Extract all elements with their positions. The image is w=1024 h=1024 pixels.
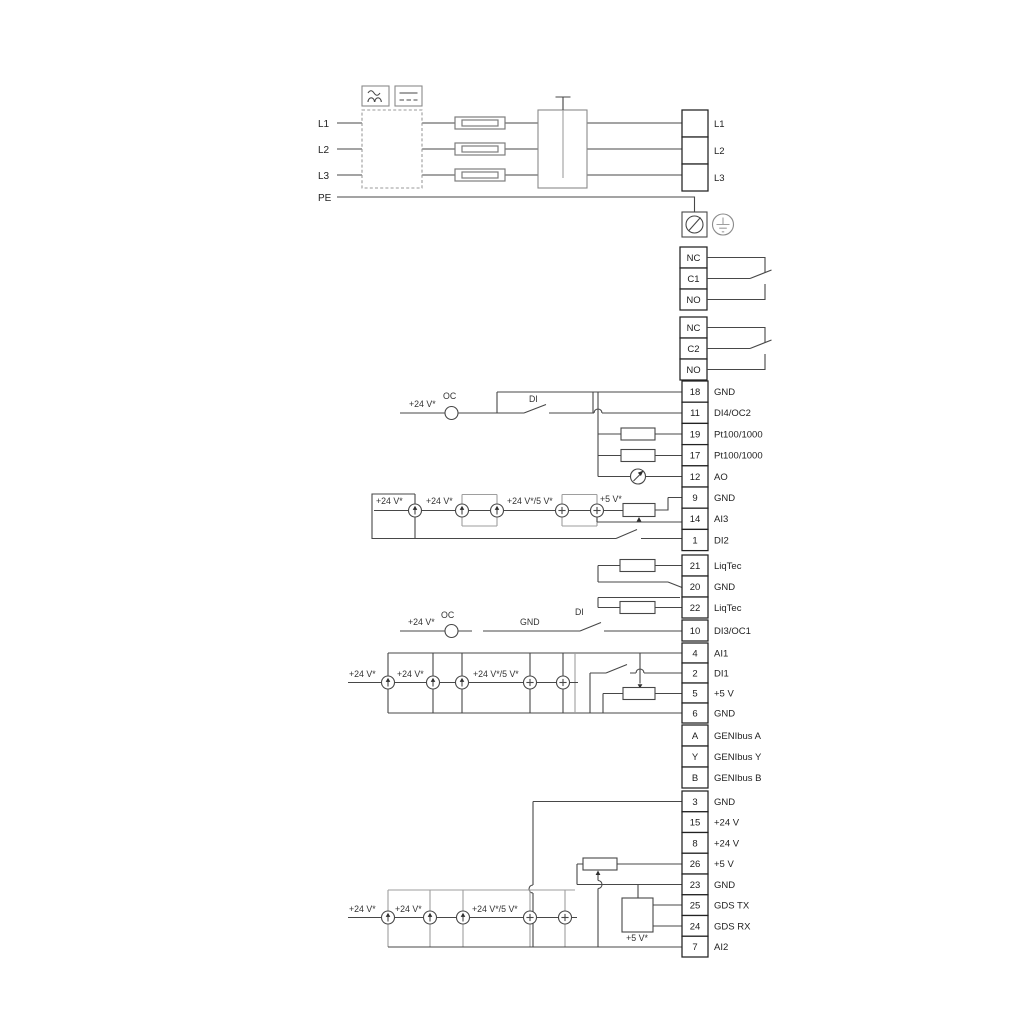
terminal-label: +5 V [714,859,734,870]
terminal-label: +5 V [714,688,734,699]
genibus-terminal-block: AGENIbus AYGENIbus YBGENIbus B [682,725,762,788]
terminal-number: NO [686,365,700,376]
terminal-label: GND [714,582,735,593]
terminal-label: DI2 [714,535,729,546]
line-l2-label: L2 [318,145,330,156]
terminal-number: C2 [687,344,699,355]
terminal-number: 19 [690,429,701,440]
io-bottom-section: +24 V* +24 V* +24 V*/5 V* +5 V* [348,802,682,948]
di4-label: DI [529,394,538,404]
terminal-number: 4 [692,648,697,659]
terminal-number: 20 [690,582,701,593]
liqtec-21-resistor-icon [620,560,655,572]
di2-switch-icon [616,530,682,539]
terminal-number: C1 [687,274,699,285]
voltage-source-icon [524,676,537,689]
voltage-source-icon [559,911,572,924]
oc1-gnd-label: GND [520,617,540,627]
ai2-label-a: +24 V* [349,904,376,914]
ai3-label-c: +24 V*/5 V* [507,496,553,506]
terminal-number: B [692,773,698,784]
terminal-label: GND [714,797,735,808]
terminal-label: AI1 [714,648,728,659]
fuse-l3-icon [455,169,505,181]
terminal-number: 7 [692,942,697,953]
io-top-terminal-block: 18GND11DI4/OC219Pt100/100017Pt100/100012… [682,381,763,551]
terminal-number: 9 [692,493,697,504]
ai3-network: +24 V* +24 V* +24 V*/5 V* +5 V* [372,494,682,539]
line-pe-label: PE [318,193,332,204]
liqtec-terminal-block: 21LiqTec20GND22LiqTec [682,555,742,618]
terminal-number: NC [687,323,701,334]
voltage-source-icon [591,504,604,517]
terminal-box [682,137,708,164]
ao-meter-icon [631,469,646,484]
ai1-potentiometer-icon [623,688,655,700]
terminal-label: GND [714,708,735,719]
current-source-icon [456,504,469,517]
pe-wire [337,197,695,212]
terminal-number: 1 [692,535,697,546]
terminal-number: 11 [690,408,700,419]
ai3-label-a: +24 V* [376,496,403,506]
current-source-icon [456,676,469,689]
terminal-label: LiqTec [714,561,742,572]
liqtec-22-resistor-icon [620,602,655,614]
terminal-label: LiqTec [714,603,742,614]
terminal-label: L1 [714,119,725,130]
fuse-l2-icon [455,143,505,155]
terminal-number: 18 [690,387,701,398]
pt100-17-resistor-icon [621,450,655,462]
relay2-terminal-block: NCC2NO [680,317,707,380]
oc2-24v-label: +24 V* [409,399,436,409]
ai1-label-c: +24 V*/5 V* [473,669,519,679]
terminal-label: GENIbus A [714,731,762,742]
disconnect-switch-icon [538,97,587,188]
terminal-number: 2 [692,668,697,679]
ai1-terminal-block: 4AI12DI15+5 V6GND [682,643,735,723]
input-filter-box [362,110,422,188]
terminal-label: GND [714,880,735,891]
liqtec-section [598,560,682,614]
terminal-number: 25 [690,901,701,912]
io-top-section: DI +24 V* OC [372,391,682,539]
terminal-number: Y [692,752,699,763]
terminal-number: 21 [690,561,701,572]
gnd3-wire [529,802,682,948]
terminal-label: AI2 [714,942,728,953]
terminal-number: 3 [692,797,697,808]
terminal-box [682,110,708,137]
ai3-label-d: +5 V* [600,494,622,504]
current-source-icon [382,911,395,924]
oc1-24v-label: +24 V* [408,617,435,627]
terminal-label: DI4/OC2 [714,408,751,419]
relay1-section: NCC1NO [680,247,772,310]
terminal-number: NO [686,295,700,306]
mains-section: L1 L2 L3 PE [318,86,695,212]
earth-section [682,212,734,237]
terminal-number: 22 [690,603,701,614]
terminal-label: DI3/OC1 [714,626,751,637]
terminal-label: GND [714,493,735,504]
di4-box [497,392,593,413]
earth-ground-icon [713,214,734,235]
current-source-icon [457,911,470,924]
gds-sensor-box-icon [622,885,682,933]
current-source-icon [409,504,422,517]
ai2-label-b: +24 V* [395,904,422,914]
terminal-number: A [692,731,699,742]
voltage-source-icon [556,504,569,517]
current-source-icon [427,676,440,689]
terminal-number: 8 [692,838,697,849]
oc1-di-label: DI [575,607,584,617]
terminal-label: GND [714,387,735,398]
terminal-number: 26 [690,859,701,870]
pt100-19-resistor-icon [621,428,655,440]
ai2-potentiometer-icon [583,858,617,875]
terminal-label: GENIbus B [714,773,762,784]
rcd-sine-icon [362,86,389,106]
terminal-label: Pt100/1000 [714,429,763,440]
di4-switch-icon [497,405,682,414]
terminal-number: 10 [690,626,701,637]
wiring-diagram-canvas: L1 L2 L3 PE [0,0,1024,1024]
terminal-label: AO [714,472,728,483]
oc1-oc-label: OC [441,610,455,620]
line-l3-label: L3 [318,171,330,182]
terminal-label: +24 V [714,818,740,829]
terminal-label: AI3 [714,514,728,525]
current-source-icon [382,676,395,689]
oc1-collector-icon [445,625,458,638]
terminal-number: 23 [690,880,701,891]
terminal-label: GDS TX [714,901,750,912]
fuse-l1-icon [455,117,505,129]
terminal-number: 6 [692,708,697,719]
ai3-potentiometer-icon [623,504,655,522]
terminal-number: 12 [690,472,701,483]
ai1-label-b: +24 V* [397,669,424,679]
terminal-number: 15 [690,818,701,829]
rcd-dc-icon [395,86,422,106]
relay1-terminal-block: NCC1NO [680,247,707,310]
gds-5v-label: +5 V* [626,933,648,943]
ai1-network: +24 V* +24 V* +24 V*/5 V* [348,653,682,713]
terminal-label: L2 [714,146,725,157]
terminal-number: 5 [692,688,697,699]
terminal-box [682,164,708,191]
terminal-number: 14 [690,514,701,525]
oc2-collector-icon [445,407,458,420]
terminal-label: DI1 [714,668,729,679]
mains-terminal-block: L1L2L3 [682,110,725,191]
wiring-diagram-page: L1 L2 L3 PE [0,0,1024,1024]
terminal-label: GDS RX [714,921,751,932]
ai2-rail [388,890,575,947]
line-l1-label: L1 [318,119,330,130]
screw-terminal-icon [682,212,707,237]
terminal-number: 24 [690,921,701,932]
ai2-label-c: +24 V*/5 V* [472,904,518,914]
oc2-oc-label: OC [443,391,457,401]
current-source-icon [424,911,437,924]
relay1-contact-icon [707,258,772,300]
terminal-label: +24 V [714,838,740,849]
terminal-label: L3 [714,173,725,184]
terminal-label: Pt100/1000 [714,451,763,462]
relay2-section: NCC2NO [680,317,772,380]
current-source-icon [491,504,504,517]
terminal-label: GENIbus Y [714,752,762,763]
terminal-number: NC [687,253,701,264]
voltage-source-icon [557,676,570,689]
ai1-label-a: +24 V* [349,669,376,679]
ai3-label-b: +24 V* [426,496,453,506]
di3-switch-icon [580,623,682,632]
di3-terminal-block: 10DI3/OC1 [682,620,751,641]
terminal-number: 17 [690,451,701,462]
relay2-contact-icon [707,328,772,370]
io-bottom-terminal-block: 3GND15+24 V8+24 V26+5 V23GND25GDS TX24GD… [682,791,751,957]
voltage-source-icon [524,911,537,924]
